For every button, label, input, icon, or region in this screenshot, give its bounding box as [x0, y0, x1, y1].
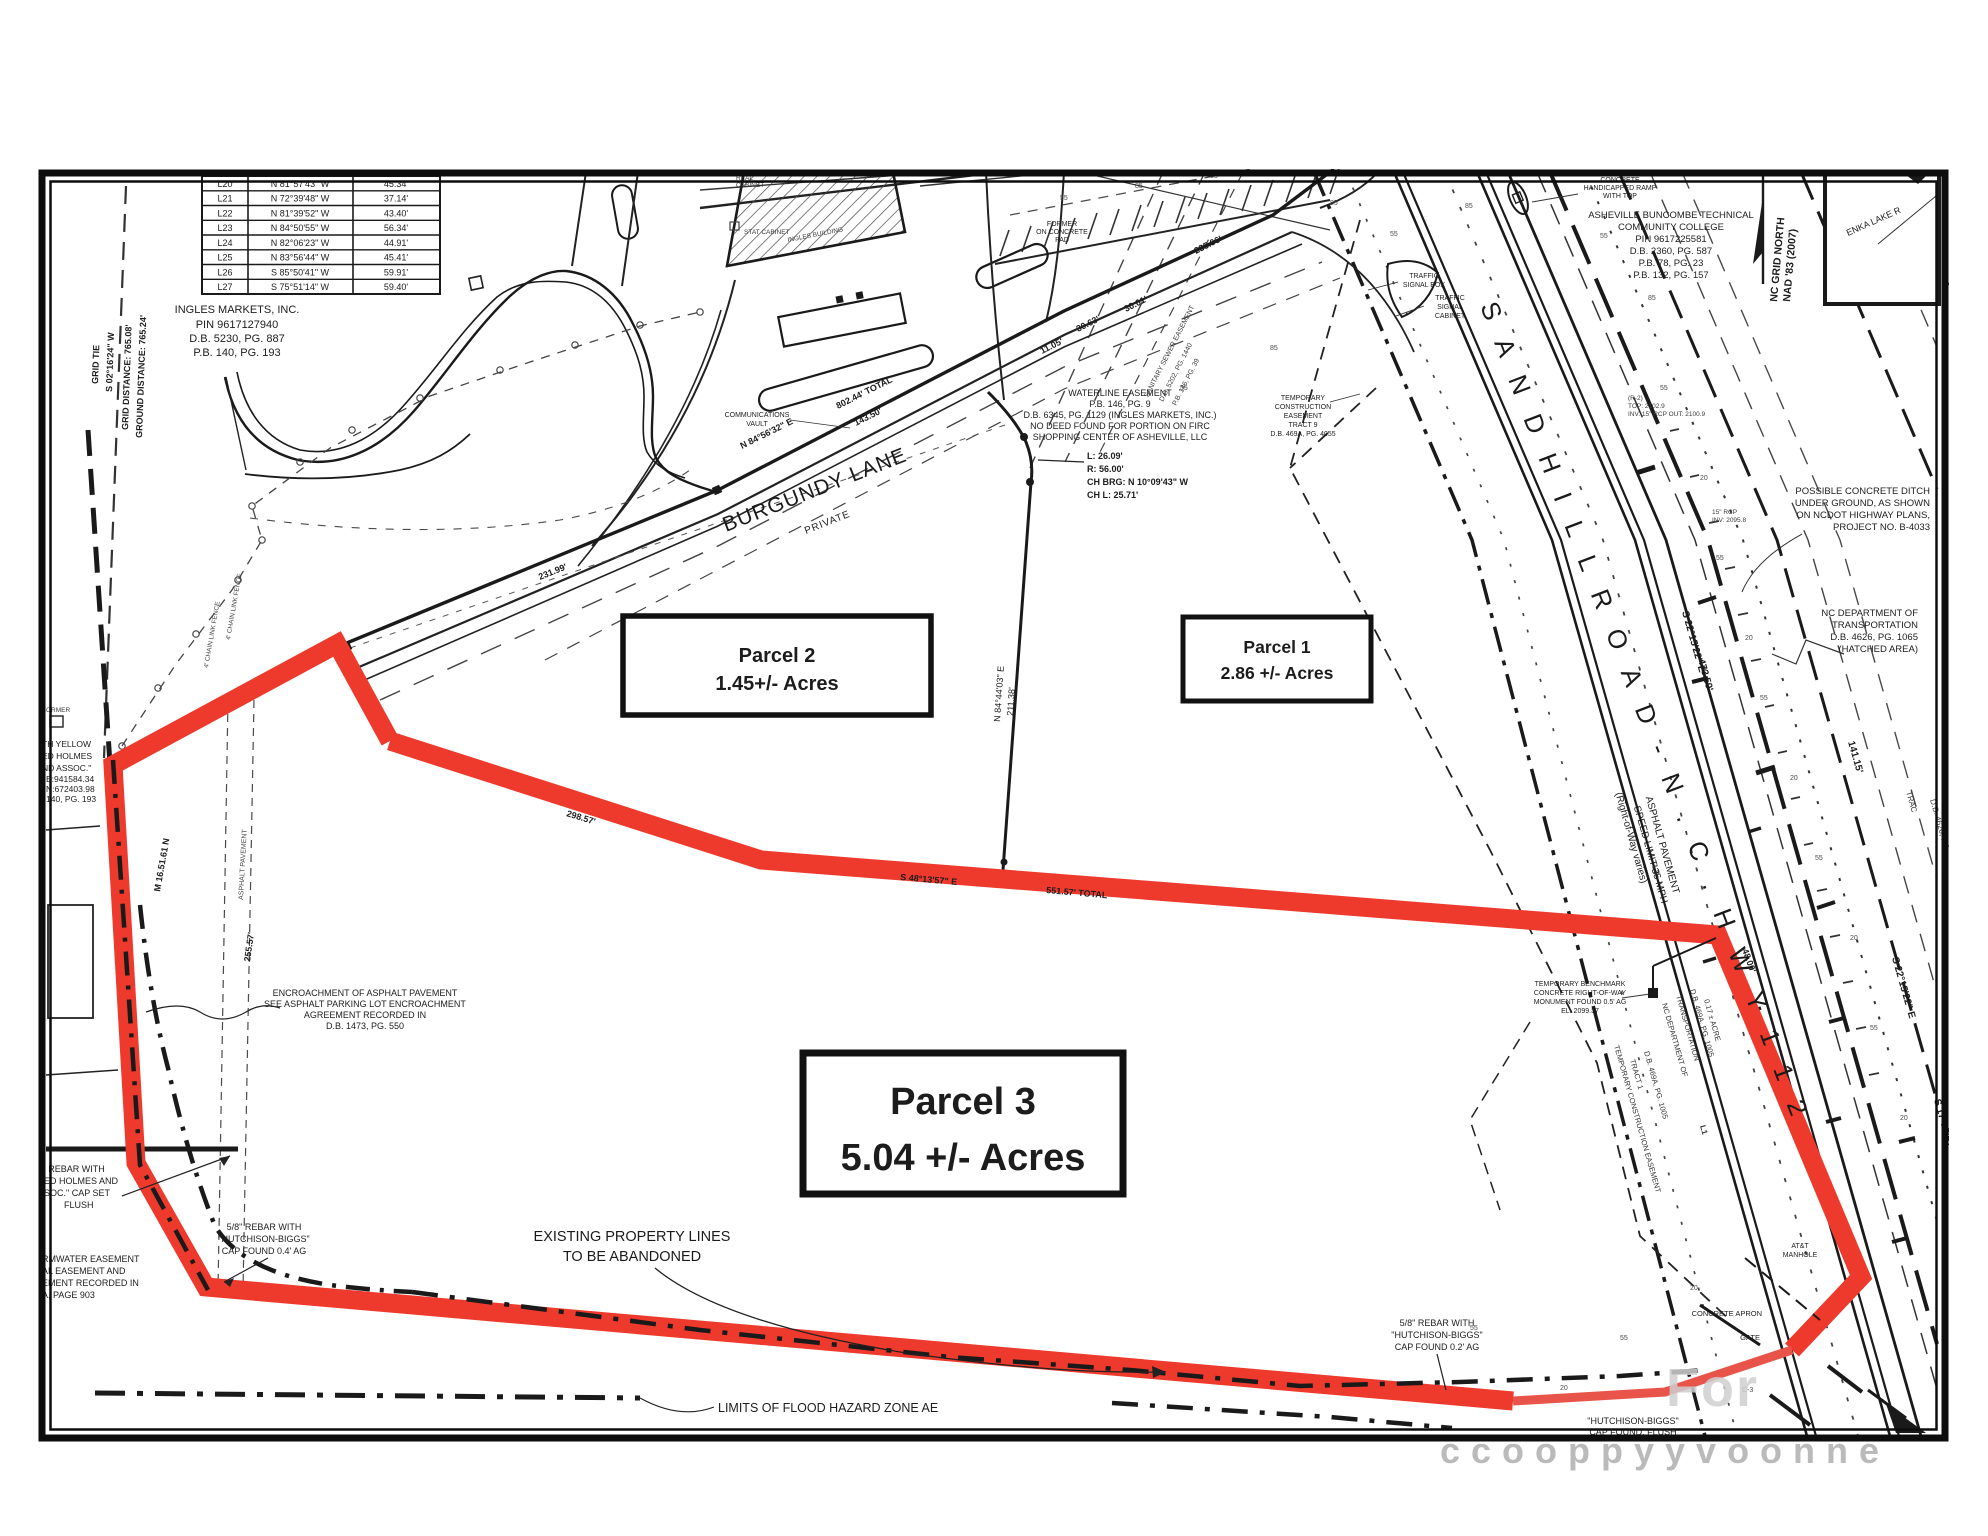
svg-text:FLUSH: FLUSH — [64, 1200, 94, 1210]
svg-text:SIGNAL BOX: SIGNAL BOX — [1403, 282, 1445, 289]
svg-text:15" RCP: 15" RCP — [1712, 509, 1737, 516]
svg-text:Parcel 3: Parcel 3 — [890, 1081, 1036, 1123]
svg-text:CAP FOUND 0.2' AG: CAP FOUND 0.2' AG — [1395, 1342, 1480, 1352]
svg-text:GRID TIE: GRID TIE — [90, 345, 101, 384]
svg-text:MANHOLE: MANHOLE — [1783, 1252, 1818, 1259]
svg-text:' REBAR WITH: ' REBAR WITH — [44, 1164, 105, 1174]
svg-text:L: 26.09': L: 26.09' — [1087, 451, 1123, 461]
svg-text:SOC." CAP SET: SOC." CAP SET — [44, 1188, 111, 1198]
svg-text:L23: L23 — [217, 223, 232, 233]
svg-text:(R-2): (R-2) — [1628, 395, 1643, 402]
svg-text:L27: L27 — [217, 282, 232, 292]
svg-text:ASHEVILLE BUNCOMBE TECHNICAL: ASHEVILLE BUNCOMBE TECHNICAL — [1588, 210, 1754, 221]
svg-text:55: 55 — [1870, 1025, 1878, 1032]
svg-text:GATE: GATE — [1740, 1333, 1760, 1342]
svg-text:55: 55 — [1660, 385, 1668, 392]
svg-text:For: For — [1666, 1358, 1759, 1418]
svg-text:COMMUNITY COLLEGE: COMMUNITY COLLEGE — [1618, 222, 1724, 233]
svg-text:MONUMENT FOUND 0.5' AG: MONUMENT FOUND 0.5' AG — [1534, 999, 1627, 1006]
svg-text:59.40': 59.40' — [384, 282, 409, 292]
svg-text:N 83°56'44" W: N 83°56'44" W — [271, 253, 330, 263]
svg-text:P.B. 78, PG. 23: P.B. 78, PG. 23 — [1639, 258, 1704, 269]
svg-text:HANDICAPPED RAMP: HANDICAPPED RAMP — [1584, 185, 1657, 192]
svg-text:WATERLINE EASEMENT: WATERLINE EASEMENT — [1068, 388, 1172, 398]
svg-text:55: 55 — [1716, 555, 1724, 562]
svg-text:55: 55 — [1390, 231, 1398, 238]
svg-text:L24: L24 — [217, 238, 232, 248]
svg-text:5/8" REBAR WITH: 5/8" REBAR WITH — [1400, 1318, 1475, 1328]
svg-text:ED HOLMES AND: ED HOLMES AND — [44, 1176, 119, 1186]
svg-text:20: 20 — [1900, 1115, 1908, 1122]
svg-text:S 02°16'24" W: S 02°16'24" W — [104, 332, 116, 392]
svg-text:85: 85 — [1330, 200, 1338, 207]
svg-text:20: 20 — [1700, 475, 1708, 482]
svg-text:D.B. 4626, PG. 1065: D.B. 4626, PG. 1065 — [1830, 632, 1918, 643]
svg-text:1.45+/- Acres: 1.45+/- Acres — [715, 673, 838, 695]
svg-text:EASEMENT: EASEMENT — [1284, 413, 1323, 420]
svg-text:20: 20 — [1850, 935, 1858, 942]
svg-text:INGLES MARKETS, INC.: INGLES MARKETS, INC. — [175, 304, 300, 316]
svg-text:PIN 9617225581: PIN 9617225581 — [1635, 234, 1706, 245]
svg-text:85: 85 — [1135, 183, 1143, 190]
svg-text:59.91': 59.91' — [384, 267, 409, 277]
svg-text:55: 55 — [1815, 855, 1823, 862]
svg-text:STAT CABINET: STAT CABINET — [744, 229, 790, 236]
svg-text:ON CONCRETE: ON CONCRETE — [1036, 229, 1088, 236]
svg-text:COMMUNICATIONS: COMMUNICATIONS — [725, 412, 790, 419]
svg-text:Parcel 1: Parcel 1 — [1243, 637, 1310, 657]
svg-text:"HUTCHISON-BIGGS": "HUTCHISON-BIGGS" — [1391, 1330, 1482, 1340]
svg-text:5/8" REBAR WITH: 5/8" REBAR WITH — [227, 1222, 302, 1232]
svg-text:CABINET: CABINET — [736, 182, 764, 189]
svg-text:CAP FOUND 0.4' AG: CAP FOUND 0.4' AG — [222, 1246, 307, 1256]
svg-text:CONCRETE RIGHT-OF-WAY: CONCRETE RIGHT-OF-WAY — [1534, 990, 1626, 997]
svg-text:CABINET: CABINET — [1435, 313, 1466, 320]
svg-text:TEMPORARY BENCHMARK: TEMPORARY BENCHMARK — [1535, 981, 1626, 988]
svg-text:85: 85 — [1648, 295, 1656, 302]
svg-text:P.B. 146, PG. 9: P.B. 146, PG. 9 — [1089, 399, 1150, 409]
svg-text:ON NCDOT HIGHWAY PLANS,: ON NCDOT HIGHWAY PLANS, — [1796, 510, 1930, 521]
svg-text:EL. 2099.37: EL. 2099.37 — [1561, 1008, 1599, 1015]
svg-text:TOP: 2102.9: TOP: 2102.9 — [1628, 403, 1665, 410]
svg-text:55: 55 — [1180, 385, 1188, 392]
svg-text:E:941584.34: E:941584.34 — [46, 774, 94, 784]
svg-text:CH L: 25.71': CH L: 25.71' — [1087, 490, 1138, 500]
svg-text:TO BE ABANDONED: TO BE ABANDONED — [563, 1249, 701, 1265]
svg-text:L21: L21 — [217, 194, 232, 204]
svg-text:20: 20 — [1690, 1285, 1698, 1292]
svg-text:INV: 2095.8: INV: 2095.8 — [1712, 517, 1746, 524]
svg-text:CH BRG: N 10°09'43" W: CH BRG: N 10°09'43" W — [1087, 477, 1189, 487]
svg-text:85: 85 — [1465, 203, 1473, 210]
svg-text:55: 55 — [1760, 695, 1768, 702]
svg-text:(HATCHED AREA): (HATCHED AREA) — [1838, 644, 1918, 655]
svg-text:TEMPORARY: TEMPORARY — [1281, 395, 1326, 402]
svg-text:N 81°39'52" W: N 81°39'52" W — [271, 208, 330, 218]
svg-text:N 84°50'55" W: N 84°50'55" W — [271, 223, 330, 233]
svg-text:85: 85 — [1270, 345, 1278, 352]
svg-text:PAD: PAD — [1055, 237, 1069, 244]
svg-text:37.14': 37.14' — [384, 194, 409, 204]
svg-text:RMWATER EASEMENT: RMWATER EASEMENT — [42, 1254, 140, 1264]
svg-text:SIGNAL: SIGNAL — [1437, 304, 1463, 311]
svg-text:55: 55 — [1620, 1335, 1628, 1342]
svg-text:LIMITS OF FLOOD HAZARD ZONE AE: LIMITS OF FLOOD HAZARD ZONE AE — [718, 1401, 938, 1415]
svg-text:TRAFFIC: TRAFFIC — [1409, 273, 1439, 280]
svg-text:211.38': 211.38' — [1005, 687, 1017, 716]
svg-text:20: 20 — [1560, 1385, 1568, 1392]
svg-text:20: 20 — [1745, 635, 1753, 642]
svg-text:AGREEMENT RECORDED IN: AGREEMENT RECORDED IN — [304, 1010, 426, 1020]
svg-text:VAULT: VAULT — [746, 421, 768, 428]
svg-text:56.34': 56.34' — [384, 223, 409, 233]
svg-text:55: 55 — [1600, 233, 1608, 240]
svg-text:"HUTCHISON-BIGGS": "HUTCHISON-BIGGS" — [1587, 1416, 1678, 1426]
svg-text:R: 56.00': R: 56.00' — [1087, 464, 1124, 474]
svg-text:20: 20 — [1790, 775, 1798, 782]
svg-text:D.B. 1473, PG. 550: D.B. 1473, PG. 550 — [326, 1021, 404, 1031]
svg-text:P.B. 140, PG. 193: P.B. 140, PG. 193 — [193, 347, 280, 359]
svg-text:SEE ASPHALT PARKING LOT ENCROA: SEE ASPHALT PARKING LOT ENCROACHMENT — [264, 999, 466, 1009]
svg-text:55: 55 — [1060, 195, 1068, 202]
svg-text:INV. 15" RCP OUT: 2100.9: INV. 15" RCP OUT: 2100.9 — [1628, 411, 1705, 418]
svg-text:ENCROACHMENT OF ASPHALT PAVEME: ENCROACHMENT OF ASPHALT PAVEMENT — [273, 988, 458, 998]
svg-text:EMENT RECORDED IN: EMENT RECORDED IN — [42, 1278, 139, 1288]
svg-text:2.86 +/- Acres: 2.86 +/- Acres — [1221, 663, 1334, 683]
svg-text:UNDER GROUND, AS SHOWN: UNDER GROUND, AS SHOWN — [1795, 498, 1930, 509]
svg-text:D.B. 6345, PG. 1129 (INGLES MA: D.B. 6345, PG. 1129 (INGLES MARKETS, INC… — [1024, 410, 1217, 420]
svg-text:55: 55 — [1470, 1325, 1478, 1332]
svg-text:140, PG. 193: 140, PG. 193 — [46, 794, 96, 804]
svg-text:AT&T: AT&T — [1791, 1243, 1809, 1250]
svg-text:Parcel 2: Parcel 2 — [739, 645, 816, 667]
svg-text:45.41': 45.41' — [384, 253, 409, 263]
svg-text:NO DEED FOUND FOR PORTION ON F: NO DEED FOUND FOR PORTION ON FIRC — [1030, 421, 1210, 431]
svg-text:CONSTRUCTION: CONSTRUCTION — [1275, 404, 1331, 411]
svg-text:N:672403.98: N:672403.98 — [46, 784, 95, 794]
svg-text:CONCRETE APRON: CONCRETE APRON — [1692, 1309, 1762, 1318]
svg-text:L26: L26 — [217, 267, 232, 277]
svg-text:POSSIBLE CONCRETE DITCH: POSSIBLE CONCRETE DITCH — [1795, 486, 1930, 497]
svg-text:P.B. 132, PG. 157: P.B. 132, PG. 157 — [1633, 270, 1708, 281]
svg-text:N 72°39'48" W: N 72°39'48" W — [271, 194, 330, 204]
svg-text:SHOPPING CENTER OF ASHEVILLE,: SHOPPING CENTER OF ASHEVILLE, LLC — [1033, 432, 1208, 442]
svg-text:TRANSPORTATION: TRANSPORTATION — [1832, 620, 1918, 631]
svg-text:EXISTING PROPERTY LINES: EXISTING PROPERTY LINES — [534, 1229, 731, 1245]
svg-text:FORMER: FORMER — [1047, 221, 1077, 228]
svg-text:AL EASEMENT AND: AL EASEMENT AND — [42, 1266, 126, 1276]
svg-text:S 75°51'14" W: S 75°51'14" W — [271, 282, 330, 292]
svg-text:43.40': 43.40' — [384, 208, 409, 218]
svg-text:NC DEPARTMENT OF: NC DEPARTMENT OF — [1821, 608, 1918, 619]
svg-text:TRAFFIC: TRAFFIC — [1435, 295, 1465, 302]
svg-text:D.B. 5230, PG. 887: D.B. 5230, PG. 887 — [189, 333, 284, 345]
svg-text:WITH TOP: WITH TOP — [1603, 193, 1637, 200]
svg-text:44.91': 44.91' — [384, 238, 409, 248]
svg-text:L25: L25 — [217, 253, 232, 263]
svg-text:D.B. 2360, PG. 587: D.B. 2360, PG. 587 — [1630, 246, 1712, 257]
svg-text:TRACT 9: TRACT 9 — [1288, 422, 1317, 429]
svg-text:"HUTCHISON-BIGGS": "HUTCHISON-BIGGS" — [218, 1234, 309, 1244]
svg-text:PIN 9617127940: PIN 9617127940 — [196, 319, 279, 331]
svg-text:5.04 +/- Acres: 5.04 +/- Acres — [841, 1137, 1086, 1179]
svg-text:N 82°06'23" W: N 82°06'23" W — [271, 238, 330, 248]
svg-text:PROJECT NO. B-4033: PROJECT NO. B-4033 — [1833, 522, 1930, 533]
svg-text:L22: L22 — [217, 208, 232, 218]
svg-text:S 85°50'41" W: S 85°50'41" W — [271, 267, 330, 277]
svg-text:D.B. 469A, PG. 4055: D.B. 469A, PG. 4055 — [1270, 431, 1335, 438]
svg-text:ccooppyyvoonne: ccooppyyvoonne — [1440, 1430, 1890, 1471]
